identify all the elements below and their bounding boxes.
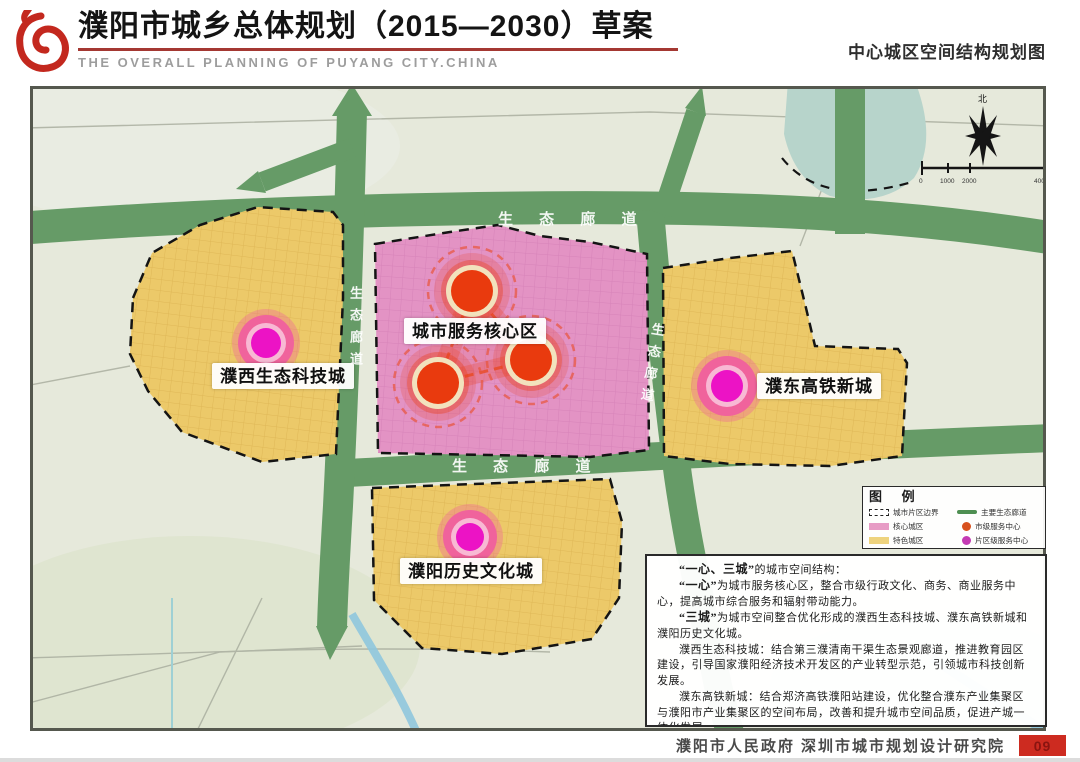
label-core-district: 城市服务核心区 [404, 318, 546, 344]
page-subtitle: THE OVERALL PLANNING OF PUYANG CITY.CHIN… [78, 55, 678, 70]
footer-credits: 濮阳市人民政府 深圳市城市规划设计研究院 [676, 735, 1005, 756]
description-lead: “一心、三城” [679, 562, 755, 576]
scale-tick: 2000 [962, 178, 977, 185]
legend-item: 城市片区边界 [869, 505, 957, 519]
legend-grid: 城市片区边界 主要生态廊道 核心城区 市级服务中心 特色城区 片区级服务中心 [869, 505, 1039, 547]
page-title: 濮阳市城乡总体规划（2015—2030）草案 [78, 10, 678, 44]
legend-item-label: 市级服务中心 [975, 521, 1021, 531]
description-paragraph: “一心”为城市服务核心区，整合市级行政文化、商务、商业服务中心，提高城市综合服务… [657, 578, 1035, 610]
page-number-badge: 09 [1019, 735, 1066, 756]
description-panel: “一心、三城”的城市空间结构： “一心”为城市服务核心区，整合市级行政文化、商务… [645, 554, 1047, 727]
description-text: 濮东高铁新城：结合郑济高铁濮阳站建设，优化整合濮东产业集聚区与濮阳市产业集聚区的… [657, 691, 1025, 727]
legend-item: 核心城区 [869, 519, 957, 533]
legend-swatch-city-center [962, 522, 971, 531]
description-paragraph: “一心、三城”的城市空间结构： [657, 562, 1035, 578]
legend-item: 市级服务中心 [957, 519, 1041, 533]
label-east-district: 濮东高铁新城 [757, 373, 881, 399]
legend-swatch-special [869, 537, 889, 544]
label-south-district: 濮阳历史文化城 [400, 558, 542, 584]
description-text: 的城市空间结构： [755, 564, 847, 576]
planning-poster: 濮阳市城乡总体规划（2015—2030）草案 THE OVERALL PLANN… [0, 0, 1080, 762]
legend-item-label: 片区级服务中心 [975, 535, 1028, 545]
corridor-label-middle: 生 态 廊 道 [452, 455, 602, 476]
legend-swatch-district-center [962, 536, 971, 545]
description-text: 濮西生态科技城：结合第三濮清南干渠生态景观廊道，推进教育园区建设，引导国家濮阳经… [657, 644, 1025, 687]
legend-item: 主要生态廊道 [957, 505, 1041, 519]
legend-item: 片区级服务中心 [957, 533, 1041, 547]
compass-north-label: 北 [978, 94, 987, 104]
description-lead: “一心” [679, 578, 717, 592]
scale-tick: 0 [919, 178, 923, 185]
corridor-label-top: 生 态 廊 道 [498, 208, 648, 229]
legend-item-label: 核心城区 [893, 521, 923, 531]
description-paragraph: “三城”为城市空间整合优化形成的濮西生态科技城、濮东高铁新城和濮阳历史文化城。 [657, 610, 1035, 642]
scale-tick: 1000 [940, 178, 955, 185]
title-block: 濮阳市城乡总体规划（2015—2030）草案 THE OVERALL PLANN… [78, 10, 678, 70]
legend-item-label: 特色城区 [893, 535, 923, 545]
description-paragraph: 濮西生态科技城：结合第三濮清南干渠生态景观廊道，推进教育园区建设，引导国家濮阳经… [657, 642, 1035, 689]
title-underline [78, 48, 678, 51]
legend-swatch-boundary [869, 509, 889, 516]
description-paragraph: 濮东高铁新城：结合郑济高铁濮阳站建设，优化整合濮东产业集聚区与濮阳市产业集聚区的… [657, 689, 1035, 727]
district-service-center-icon [691, 350, 763, 422]
legend-title: 图 例 [869, 490, 1039, 504]
bottom-edge [0, 758, 1080, 762]
header: 濮阳市城乡总体规划（2015—2030）草案 THE OVERALL PLANN… [0, 0, 1080, 86]
footer: 濮阳市人民政府 深圳市城市规划设计研究院 09 [30, 733, 1066, 758]
legend-item-label: 主要生态廊道 [981, 507, 1027, 517]
label-west-district: 濮西生态科技城 [212, 363, 354, 389]
legend-item-label: 城市片区边界 [893, 507, 939, 517]
legend-swatch-corridor [957, 510, 977, 514]
map-sheet-title: 中心城区空间结构规划图 [848, 38, 1046, 63]
description-lead: “三城” [679, 610, 717, 624]
legend-item: 特色城区 [869, 533, 957, 547]
legend-swatch-core [869, 523, 889, 530]
city-logo-icon [10, 6, 72, 80]
legend-panel: 图 例 城市片区边界 主要生态廊道 核心城区 市级服务中心 特色城区 [862, 486, 1046, 549]
